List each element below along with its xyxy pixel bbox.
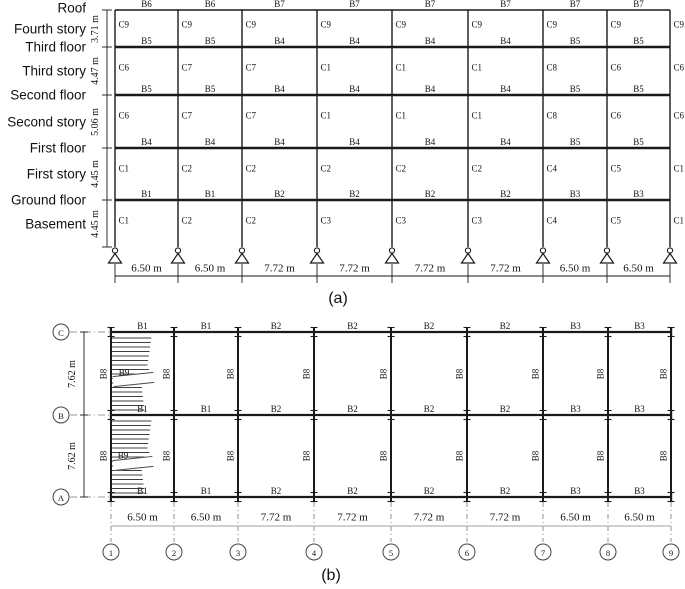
column-label: C6 bbox=[119, 112, 130, 121]
beam-label: B2 bbox=[274, 190, 285, 199]
column-label: C1 bbox=[321, 112, 332, 121]
beam-label: B7 bbox=[274, 0, 285, 9]
grid-bubble-label: A bbox=[58, 493, 64, 502]
beam-label: B4 bbox=[500, 85, 511, 94]
story-level-label: First floor bbox=[30, 141, 86, 155]
column-label: C9 bbox=[182, 21, 193, 30]
beam-label: B4 bbox=[349, 37, 360, 46]
beam-label: B6 bbox=[205, 0, 216, 9]
pin-support-icon bbox=[314, 248, 319, 253]
bay-width-dim: 6.50 m bbox=[560, 513, 591, 524]
beam-label: B2 bbox=[424, 322, 435, 331]
beam-label: B2 bbox=[347, 405, 358, 414]
beam-label: B2 bbox=[271, 487, 282, 496]
column-label: C1 bbox=[472, 64, 483, 73]
story-level-label: Third story bbox=[22, 64, 86, 78]
beam-label: B1 bbox=[201, 322, 212, 331]
beam-label: B1 bbox=[137, 322, 148, 331]
beam-label: B5 bbox=[205, 37, 216, 46]
beam-label: B5 bbox=[633, 37, 644, 46]
beam-label: B2 bbox=[271, 405, 282, 414]
bay-width-dim: 6.50 m bbox=[131, 264, 162, 275]
grid-bubble-label: B bbox=[58, 411, 64, 420]
beam-label: B1 bbox=[141, 190, 152, 199]
pin-support-icon bbox=[389, 248, 394, 253]
column-label: C2 bbox=[396, 165, 407, 174]
row-spacing-dim: 7.62 m bbox=[68, 442, 78, 470]
grid-bubble-label: 7 bbox=[541, 548, 545, 557]
pin-support-icon bbox=[109, 254, 122, 264]
bay-width-dim: 6.50 m bbox=[560, 264, 591, 275]
cross-beam-label: B8 bbox=[100, 368, 109, 379]
grid-bubble-label: 1 bbox=[109, 548, 113, 557]
story-level-label: Basement bbox=[25, 217, 86, 231]
bay-width-dim: 7.72 m bbox=[337, 513, 368, 524]
cross-beam-label: B8 bbox=[380, 451, 389, 462]
column-label: C1 bbox=[674, 165, 685, 174]
column-label: C2 bbox=[246, 217, 257, 226]
beam-label: B2 bbox=[271, 322, 282, 331]
beam-label: B2 bbox=[500, 322, 511, 331]
story-height-dim: 4.47 m bbox=[91, 57, 101, 85]
column-label: C7 bbox=[182, 112, 193, 121]
beam-label: B1 bbox=[201, 405, 212, 414]
pin-support-icon bbox=[664, 254, 677, 264]
beam-label: B5 bbox=[570, 85, 581, 94]
story-height-dim: 3.71 m bbox=[91, 15, 101, 43]
grid-bubble-label: 4 bbox=[312, 548, 316, 557]
column-label: C7 bbox=[246, 64, 257, 73]
cross-beam-label: B8 bbox=[532, 451, 541, 462]
pin-support-icon bbox=[172, 254, 185, 264]
column-label: C3 bbox=[472, 217, 483, 226]
column-label: C9 bbox=[547, 21, 558, 30]
beam-label: B1 bbox=[201, 487, 212, 496]
column-label: C2 bbox=[182, 165, 193, 174]
beam-label: B3 bbox=[570, 190, 581, 199]
pin-support-icon bbox=[465, 248, 470, 253]
column-label: C9 bbox=[674, 21, 685, 30]
bay-width-dim: 7.72 m bbox=[261, 513, 292, 524]
column-label: C2 bbox=[182, 217, 193, 226]
column-label: C2 bbox=[472, 165, 483, 174]
beam-label: B5 bbox=[141, 85, 152, 94]
column-label: C6 bbox=[119, 64, 130, 73]
stair-beam-label: B9 bbox=[118, 451, 129, 460]
cross-beam-label: B8 bbox=[227, 451, 236, 462]
cross-beam-label: B8 bbox=[227, 368, 236, 379]
beam-label: B3 bbox=[570, 487, 581, 496]
caption-a: (a) bbox=[328, 290, 348, 308]
beam-label: B6 bbox=[141, 0, 152, 9]
beam-label: B7 bbox=[425, 0, 436, 9]
column-label: C7 bbox=[246, 112, 257, 121]
column-label: C7 bbox=[182, 64, 193, 73]
beam-label: B2 bbox=[500, 190, 511, 199]
story-level-label: Second floor bbox=[10, 88, 86, 102]
pin-support-icon bbox=[667, 248, 672, 253]
column-label: C8 bbox=[547, 64, 558, 73]
cross-beam-label: B8 bbox=[303, 451, 312, 462]
beam-label: B3 bbox=[634, 405, 645, 414]
cross-beam-label: B8 bbox=[163, 451, 172, 462]
cross-beam-label: B8 bbox=[100, 451, 109, 462]
pin-support-icon bbox=[112, 248, 117, 253]
column-label: C1 bbox=[119, 217, 130, 226]
beam-label: B2 bbox=[347, 487, 358, 496]
pin-support-icon bbox=[540, 248, 545, 253]
story-level-label: Ground floor bbox=[11, 193, 86, 207]
grid-bubble-label: 2 bbox=[172, 548, 176, 557]
beam-label: B4 bbox=[349, 138, 360, 147]
grid-bubble-label: 5 bbox=[389, 548, 393, 557]
column-label: C5 bbox=[611, 217, 622, 226]
column-label: C1 bbox=[396, 112, 407, 121]
pin-support-icon bbox=[601, 254, 614, 264]
story-height-dim: 4.45 m bbox=[91, 210, 101, 238]
bay-width-dim: 6.50 m bbox=[191, 513, 222, 524]
grid-bubble-label: 3 bbox=[236, 548, 240, 557]
beam-label: B4 bbox=[349, 85, 360, 94]
cross-beam-label: B8 bbox=[660, 368, 669, 379]
bay-width-dim: 7.72 m bbox=[414, 513, 445, 524]
column-label: C6 bbox=[611, 64, 622, 73]
column-label: C1 bbox=[396, 64, 407, 73]
pin-support-icon bbox=[239, 248, 244, 253]
column-label: C6 bbox=[674, 112, 685, 121]
beam-label: B4 bbox=[274, 37, 285, 46]
beam-label: B5 bbox=[141, 37, 152, 46]
stair-beam-label: B9 bbox=[119, 368, 130, 377]
beam-label: B2 bbox=[424, 405, 435, 414]
grid-bubble-label: 8 bbox=[606, 548, 610, 557]
story-height-dim: 4.45 m bbox=[91, 160, 101, 188]
bay-width-dim: 7.72 m bbox=[415, 264, 446, 275]
beam-label: B5 bbox=[570, 138, 581, 147]
beam-label: B4 bbox=[500, 37, 511, 46]
bay-width-dim: 6.50 m bbox=[624, 513, 655, 524]
beam-label: B2 bbox=[349, 190, 360, 199]
pin-support-icon bbox=[462, 254, 475, 264]
bay-width-dim: 7.72 m bbox=[490, 264, 521, 275]
column-label: C9 bbox=[321, 21, 332, 30]
column-label: C4 bbox=[547, 165, 558, 174]
story-level-label: Second story bbox=[7, 115, 86, 129]
cross-beam-label: B8 bbox=[456, 451, 465, 462]
beam-label: B4 bbox=[141, 138, 152, 147]
pin-support-icon bbox=[386, 254, 399, 264]
beam-label: B4 bbox=[205, 138, 216, 147]
beam-label: B5 bbox=[633, 85, 644, 94]
cross-beam-label: B8 bbox=[303, 368, 312, 379]
beam-label: B1 bbox=[137, 487, 148, 496]
story-level-label: Fourth story bbox=[14, 22, 86, 36]
column-label: C8 bbox=[547, 112, 558, 121]
column-label: C3 bbox=[321, 217, 332, 226]
beam-label: B2 bbox=[424, 487, 435, 496]
beam-label: B3 bbox=[570, 322, 581, 331]
beam-label: B1 bbox=[137, 405, 148, 414]
beam-label: B2 bbox=[500, 405, 511, 414]
column-label: C6 bbox=[674, 64, 685, 73]
pin-support-icon bbox=[175, 248, 180, 253]
beam-label: B2 bbox=[500, 487, 511, 496]
beam-label: B3 bbox=[570, 405, 581, 414]
beam-label: B7 bbox=[349, 0, 360, 9]
caption-b: (b) bbox=[321, 567, 341, 585]
column-label: C1 bbox=[472, 112, 483, 121]
column-label: C9 bbox=[246, 21, 257, 30]
beam-label: B5 bbox=[633, 138, 644, 147]
bay-width-dim: 7.72 m bbox=[490, 513, 521, 524]
column-label: C5 bbox=[611, 165, 622, 174]
cross-beam-label: B8 bbox=[532, 368, 541, 379]
bay-width-dim: 7.72 m bbox=[339, 264, 370, 275]
column-label: C9 bbox=[472, 21, 483, 30]
cross-beam-label: B8 bbox=[660, 451, 669, 462]
column-label: C1 bbox=[674, 217, 685, 226]
beam-label: B1 bbox=[205, 190, 216, 199]
column-label: C4 bbox=[547, 217, 558, 226]
column-label: C6 bbox=[611, 112, 622, 121]
column-label: C2 bbox=[246, 165, 257, 174]
beam-label: B4 bbox=[425, 85, 436, 94]
beam-label: B4 bbox=[274, 85, 285, 94]
pin-support-icon bbox=[604, 248, 609, 253]
column-label: C1 bbox=[321, 64, 332, 73]
column-label: C9 bbox=[611, 21, 622, 30]
story-level-label: Roof bbox=[57, 1, 86, 15]
bay-width-dim: 7.72 m bbox=[264, 264, 295, 275]
column-label: C1 bbox=[119, 165, 130, 174]
column-label: C3 bbox=[396, 217, 407, 226]
beam-label: B3 bbox=[634, 322, 645, 331]
beam-label: B2 bbox=[425, 190, 436, 199]
structural-figure: (a) (b) RoofFourth storyThird floorThird… bbox=[0, 0, 685, 589]
beam-label: B4 bbox=[425, 37, 436, 46]
beam-label: B7 bbox=[500, 0, 511, 9]
beam-label: B2 bbox=[347, 322, 358, 331]
cross-beam-label: B8 bbox=[456, 368, 465, 379]
story-height-dim: 5.06 m bbox=[91, 108, 101, 136]
pin-support-icon bbox=[311, 254, 324, 264]
bay-width-dim: 6.50 m bbox=[127, 513, 158, 524]
beam-label: B3 bbox=[633, 190, 644, 199]
beam-label: B3 bbox=[634, 487, 645, 496]
beam-label: B7 bbox=[633, 0, 644, 9]
column-label: C2 bbox=[321, 165, 332, 174]
beam-label: B4 bbox=[274, 138, 285, 147]
beam-label: B5 bbox=[205, 85, 216, 94]
story-level-label: Third floor bbox=[25, 40, 86, 54]
bay-width-dim: 6.50 m bbox=[195, 264, 226, 275]
row-spacing-dim: 7.62 m bbox=[68, 360, 78, 388]
cross-beam-label: B8 bbox=[597, 368, 606, 379]
grid-bubble-label: C bbox=[58, 328, 64, 337]
grid-bubble-label: 9 bbox=[669, 548, 673, 557]
beam-label: B4 bbox=[500, 138, 511, 147]
pin-support-icon bbox=[537, 254, 550, 264]
beam-label: B7 bbox=[570, 0, 581, 9]
column-label: C9 bbox=[119, 21, 130, 30]
column-label: C9 bbox=[396, 21, 407, 30]
grid-bubble-label: 6 bbox=[465, 548, 469, 557]
cross-beam-label: B8 bbox=[163, 368, 172, 379]
cross-beam-label: B8 bbox=[380, 368, 389, 379]
beam-label: B5 bbox=[570, 37, 581, 46]
beam-label: B4 bbox=[425, 138, 436, 147]
cross-beam-label: B8 bbox=[597, 451, 606, 462]
pin-support-icon bbox=[236, 254, 249, 264]
story-level-label: First story bbox=[27, 167, 86, 181]
bay-width-dim: 6.50 m bbox=[623, 264, 654, 275]
